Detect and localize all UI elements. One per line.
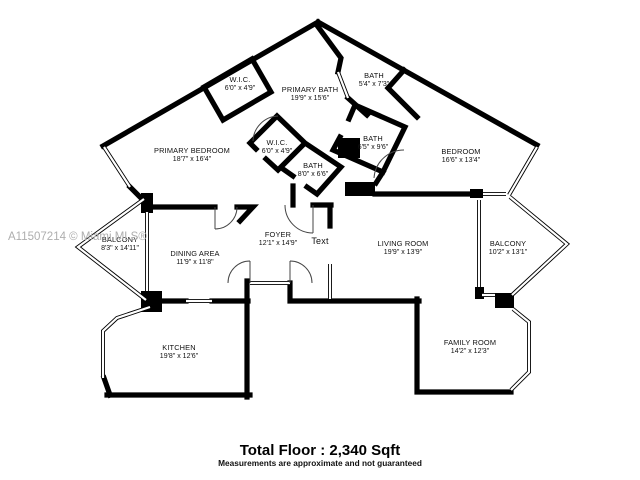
disclaimer-text: Measurements are approximate and not gua… [218, 458, 422, 468]
block-family-ne-corner [495, 293, 514, 308]
room-label-family-room: FAMILY ROOM [444, 338, 496, 347]
floorplan-svg: W.I.C. 6'0" x 4'9" PRIMARY BATH 19'9" x … [0, 0, 640, 480]
block-bedroom-sill [470, 189, 483, 198]
mls-watermark: A11507214 © Miami MLS® [8, 231, 147, 243]
room-labels: W.I.C. 6'0" x 4'9" PRIMARY BATH 19'9" x … [101, 71, 528, 360]
block-balcony-left-top [141, 193, 153, 213]
room-label-text-artifact: Text [311, 236, 329, 246]
room-label-wic-top: W.I.C. [229, 75, 250, 84]
room-label-bath-right: BATH [363, 134, 383, 143]
room-label-kitchen: KITCHEN [162, 343, 196, 352]
room-dims-bath-right: 6'5" x 9'6" [358, 144, 389, 151]
room-label-dining-area: DINING AREA [170, 249, 219, 258]
room-label-balcony-right: BALCONY [490, 239, 526, 248]
room-label-living-room: LIVING ROOM [378, 239, 429, 248]
room-dims-family-room: 14'2" x 12'3" [451, 348, 490, 355]
total-floor-area: Total Floor : 2,340 Sqft [240, 442, 401, 459]
room-dims-foyer: 12'1" x 14'9" [259, 240, 298, 247]
room-dims-bedroom: 16'6" x 13'4" [442, 157, 481, 164]
room-label-bath-top: BATH [364, 71, 384, 80]
room-dims-living-room: 19'9" x 13'9" [384, 249, 423, 256]
room-dims-kitchen: 19'8" x 12'6" [160, 353, 199, 360]
room-label-primary-bedroom: PRIMARY BEDROOM [154, 146, 230, 155]
room-label-bedroom: BEDROOM [441, 147, 480, 156]
room-label-bath-center: BATH [303, 161, 323, 170]
floorplan-image: W.I.C. 6'0" x 4'9" PRIMARY BATH 19'9" x … [0, 0, 640, 480]
room-label-primary-bath: PRIMARY BATH [282, 85, 338, 94]
room-dims-balcony-right: 10'2" x 13'1" [489, 249, 528, 256]
block-central-shaft [345, 182, 375, 196]
room-label-wic-mid: W.I.C. [266, 138, 287, 147]
room-dims-wic-mid: 6'0" x 4'9" [262, 148, 293, 155]
room-dims-primary-bedroom: 18'7" x 16'4" [173, 156, 212, 163]
room-dims-bath-top: 5'4" x 7'3" [359, 81, 390, 88]
block-bath-chase [338, 138, 360, 158]
room-dims-primary-bath: 19'9" x 15'6" [291, 95, 330, 102]
room-dims-bath-center: 8'0" x 6'6" [298, 171, 329, 178]
room-dims-balcony-left: 8'3" x 14'11" [101, 245, 139, 252]
room-label-foyer: FOYER [265, 230, 291, 239]
room-dims-wic-top: 6'0" x 4'9" [225, 85, 256, 92]
room-dims-dining-area: 11'9" x 11'8" [176, 259, 214, 266]
